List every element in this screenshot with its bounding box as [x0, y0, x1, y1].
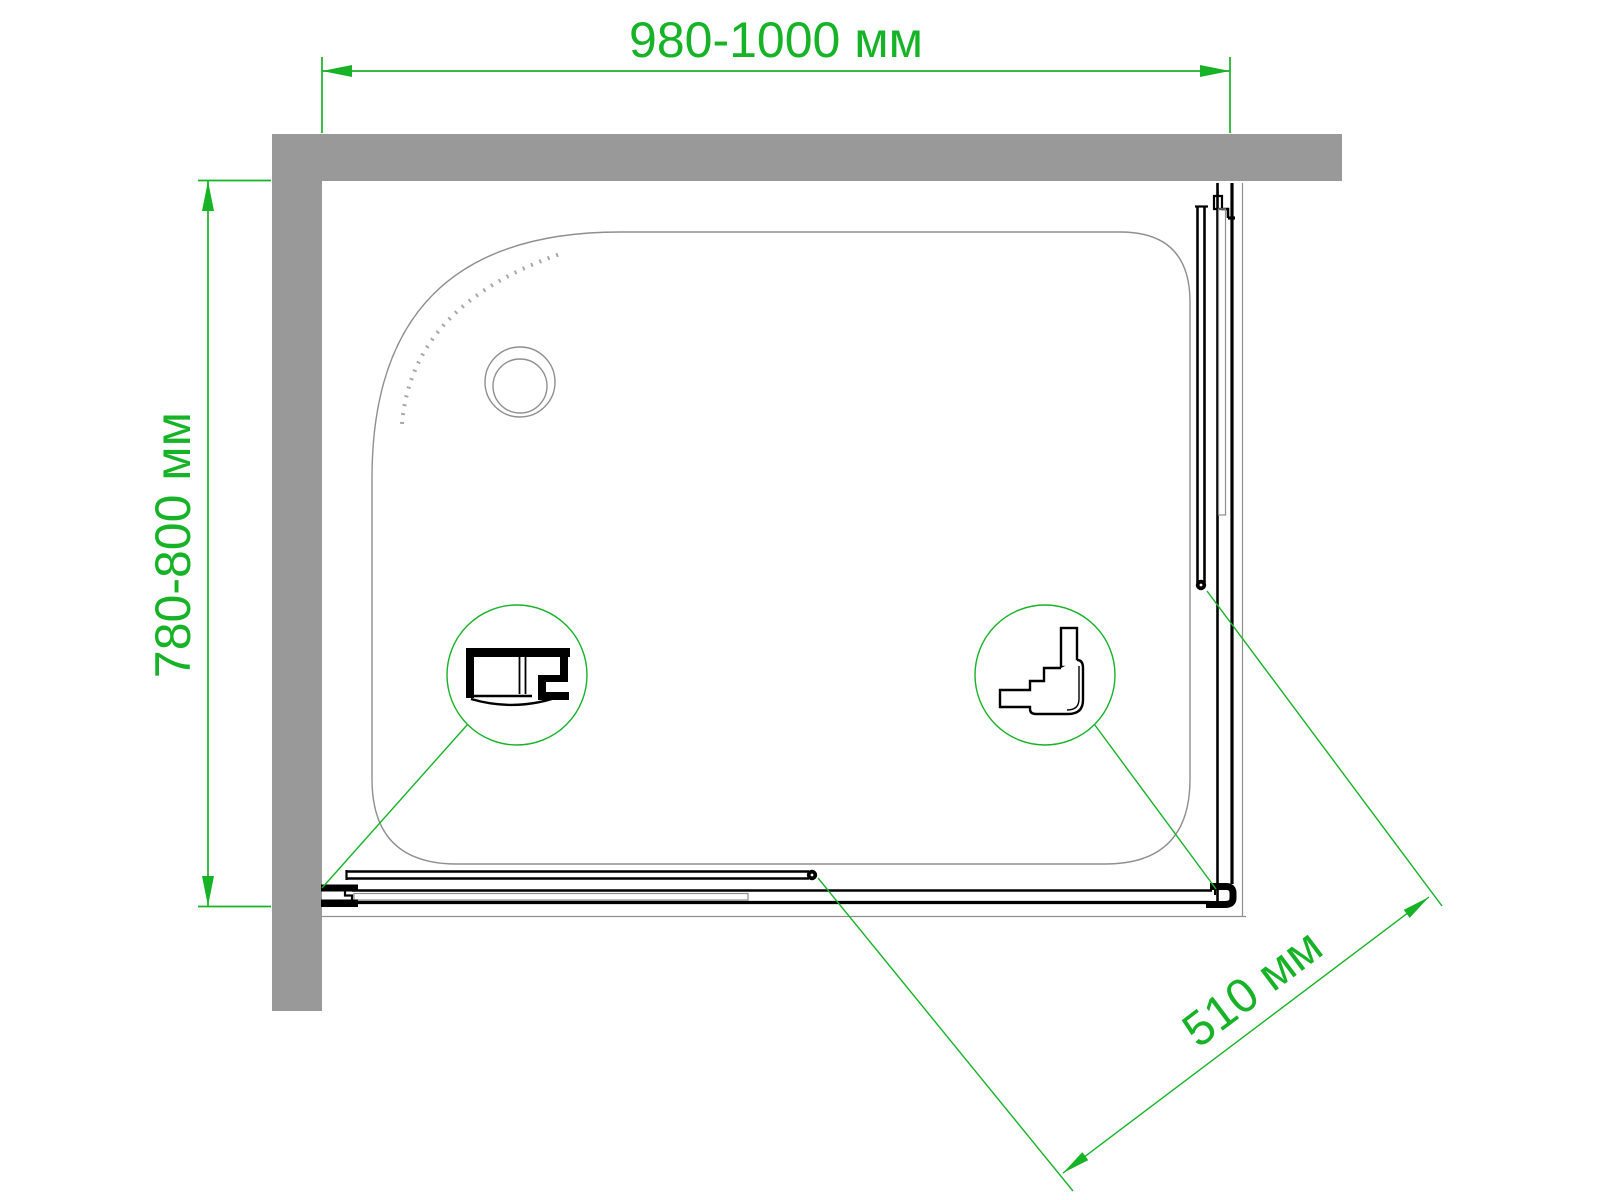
entry-dimension-line	[1063, 897, 1429, 1173]
depth-arrow-bottom	[202, 876, 214, 906]
dimension-width: 980-1000 мм	[322, 12, 1230, 133]
bottom-door-end-roller-pin	[811, 874, 814, 877]
bottom-left-bracket-bottom	[321, 900, 358, 908]
bottom-fixed-glass	[354, 894, 748, 901]
right-fixed-glass	[1219, 209, 1226, 515]
drain-outer-circle	[485, 347, 555, 417]
width-arrow-right	[1200, 65, 1230, 77]
drawing-canvas: 980-1000 мм 780-800 мм 510 мм	[0, 0, 1600, 1200]
corner-bracket	[1206, 887, 1233, 905]
shower-enclosure-plan-drawing: 980-1000 мм 780-800 мм 510 мм	[0, 0, 1600, 1200]
bottom-left-bracket-step	[345, 892, 352, 900]
bottom-left-bracket-top	[321, 885, 358, 892]
shower-tray	[372, 232, 1190, 864]
profile-section-right	[1000, 628, 1083, 714]
profile-section-left	[466, 648, 570, 705]
right-door-end-roller-pin	[1200, 584, 1203, 587]
drain-inner-circle	[493, 359, 547, 413]
dimension-depth: 780-800 мм	[145, 181, 271, 907]
wall-top	[272, 134, 1342, 181]
detail-callout-right	[975, 605, 1216, 889]
tray-corner-serration	[402, 254, 560, 424]
bottom-panel-assembly	[321, 870, 1246, 917]
detail-callout-left	[322, 605, 587, 888]
width-dimension-label: 980-1000 мм	[629, 12, 923, 68]
wall-left	[272, 134, 322, 1011]
depth-dimension-label: 780-800 мм	[145, 412, 201, 678]
right-panel-assembly	[1195, 183, 1243, 916]
width-arrow-left	[322, 65, 352, 77]
entry-extension-1	[818, 878, 1073, 1191]
tray-outline	[372, 232, 1190, 864]
profile-body	[1000, 660, 1083, 714]
entry-arrow-lower	[1063, 1152, 1088, 1173]
entry-arrow-upper	[1404, 897, 1429, 918]
depth-arrow-top	[202, 181, 214, 211]
